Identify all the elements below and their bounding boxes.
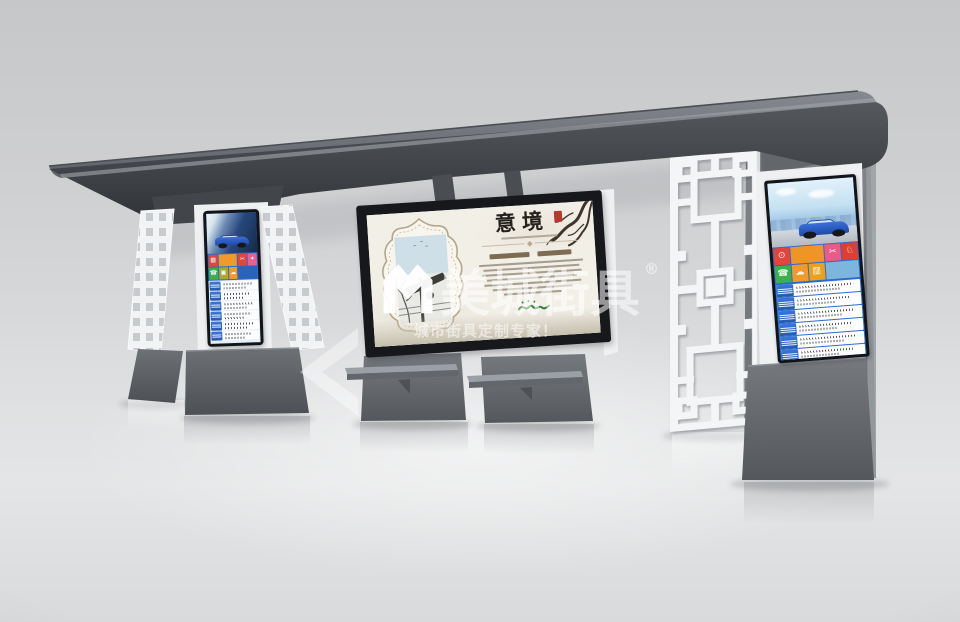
bus-shelter-render: ▦✂✦ ☎▣☁: [0, 0, 960, 622]
schedule-row: [209, 280, 257, 291]
frame-photo: [393, 234, 451, 323]
tile-icon: ⊙: [778, 252, 786, 262]
left-digital-screen: ▦✂✦ ☎▣☁: [203, 209, 264, 347]
lion-badge-icon: ♘: [841, 242, 858, 260]
tile-icon: ✂: [829, 248, 837, 258]
phone-icon: ☎: [775, 265, 792, 283]
gift-icon: ✦: [248, 253, 257, 265]
grid-icon: ▦: [209, 255, 218, 267]
left-bus-schedule-list: [208, 279, 260, 344]
route-label: [777, 297, 795, 310]
route-label: [781, 349, 799, 360]
city-sunset-tile: [790, 245, 825, 265]
tile-icon: ✦: [250, 256, 255, 262]
route-label: [209, 281, 220, 290]
search-icon: ⊙: [773, 247, 790, 265]
tile-icon: ▣: [220, 270, 226, 276]
car-photo-tile: [238, 266, 257, 279]
red-seal-stamp: [553, 211, 562, 222]
route-label: [778, 310, 796, 323]
right-digital-screen: ⊙✂♘ ☎☁▥: [764, 174, 870, 364]
bench-base-b: [481, 354, 593, 423]
left-pillar-leg-left: [128, 209, 174, 353]
center-lightbox: 意境: [356, 190, 611, 358]
route-label: [776, 284, 794, 297]
right-base: [742, 358, 874, 480]
left-screen-car-ad: [206, 212, 257, 254]
route-label: [779, 323, 797, 336]
bench-base-a: [361, 353, 466, 421]
route-label: [211, 321, 222, 330]
pool-photo-tile: [825, 260, 860, 280]
route-label: [210, 301, 221, 310]
cloud-icon: ☁: [791, 264, 808, 282]
left-base-small: [128, 349, 183, 403]
tile-icon: ▦: [210, 258, 216, 264]
poster-title: 意境: [494, 210, 549, 234]
tile-icon: ☁: [795, 268, 805, 278]
tile-icon: ▥: [812, 267, 821, 277]
blue-suv-car: [798, 218, 849, 240]
schedule-row: [211, 310, 259, 321]
decorative-rule: [482, 238, 578, 249]
poster-paragraph: [472, 258, 592, 298]
right-bus-schedule-list: [775, 278, 867, 360]
left-tile-grid: ▦✂✦ ☎▣☁: [207, 252, 258, 281]
schedule-row: [211, 320, 259, 331]
tile-icon: ☁: [230, 270, 236, 276]
route-label: [780, 336, 798, 349]
phone-icon: ☎: [209, 268, 218, 280]
route-label: [210, 291, 221, 300]
route-label: [211, 311, 222, 320]
cloud-icon: ☁: [229, 267, 238, 279]
right-screen-car-ad: [767, 177, 858, 247]
blue-suv-car: [215, 234, 249, 248]
schedule-row: [211, 330, 259, 341]
tile-icon: ☎: [777, 269, 789, 279]
landscape-poster: 意境: [367, 201, 601, 347]
route-label: [211, 331, 222, 340]
scissors-icon: ✂: [238, 254, 247, 266]
tile-icon: ♘: [845, 246, 854, 256]
schedule-row: [210, 290, 258, 301]
schedule-row: [210, 300, 258, 311]
tile-icon: ✂: [240, 257, 245, 263]
tile-icon: ☎: [210, 271, 218, 277]
left-base-wide: [185, 348, 309, 415]
chart-icon: ▥: [808, 263, 825, 281]
car-ad-tile: [218, 254, 237, 267]
lock-icon: ▣: [219, 267, 228, 279]
scissors-icon: ✂: [824, 243, 841, 261]
